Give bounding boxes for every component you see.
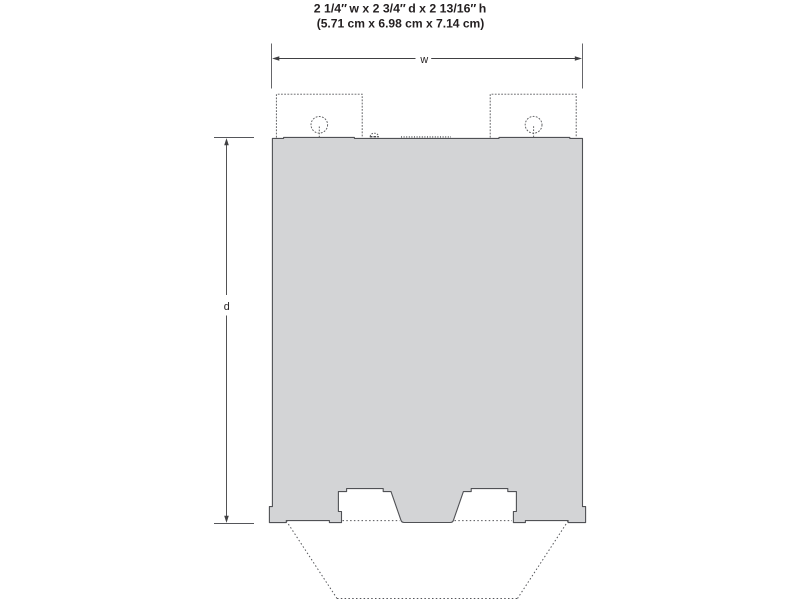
svg-text:2 1/4″ w x 2 3/4″ d x 2 13/16″: 2 1/4″ w x 2 3/4″ d x 2 13/16″ h: [314, 1, 487, 15]
svg-text:d: d: [224, 301, 230, 313]
svg-text:(5.71 cm x 6.98 cm x 7.14 cm): (5.71 cm x 6.98 cm x 7.14 cm): [317, 16, 485, 30]
svg-text:w: w: [419, 54, 428, 66]
